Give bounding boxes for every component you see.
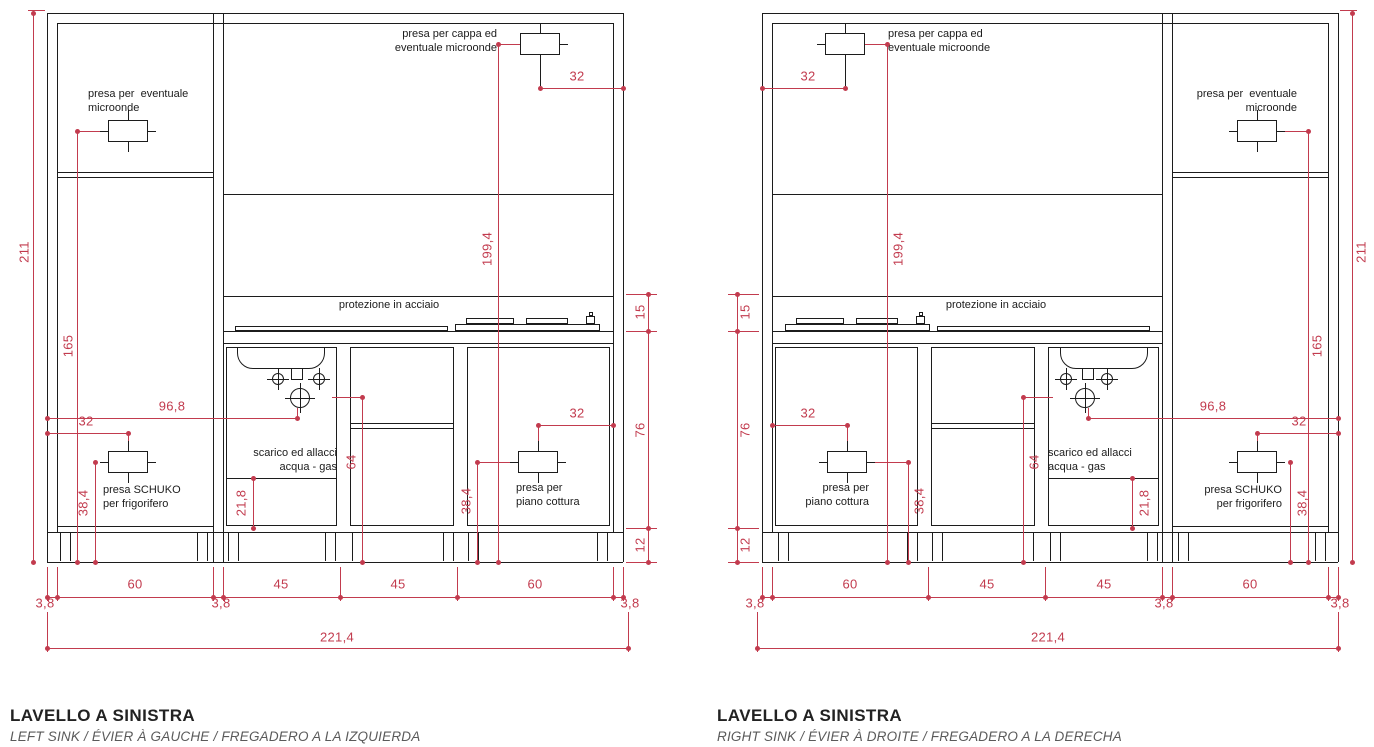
plinth-foot (788, 532, 789, 561)
dimension-arrow (1255, 431, 1260, 436)
dim-hood-height: 199,4 (891, 232, 906, 266)
schuko-outlet-label: presa SCHUKO (1204, 484, 1282, 498)
dim-schuko-height: 38,4 (1295, 490, 1310, 517)
structure-line (772, 194, 1162, 195)
plinth-foot (1325, 532, 1326, 561)
dimension-line (728, 528, 759, 529)
plinth-foot (1178, 532, 1179, 561)
dimension-arrow (906, 460, 911, 465)
dimension-arrow (770, 595, 775, 600)
dimension-arrow (1350, 11, 1355, 16)
dimension-arrow (1350, 560, 1355, 565)
plinth-foot (932, 532, 933, 561)
dim-gas-height: 64 (1027, 454, 1042, 469)
plinth-foot (1315, 532, 1316, 561)
dimension-arrow (1336, 416, 1341, 421)
dimension-arrow (1043, 595, 1048, 600)
dim-base-height: 76 (738, 422, 753, 437)
middle-base-cabinet (931, 347, 1035, 526)
dimension-arrow (1130, 526, 1135, 531)
hood-outlet-symbol (825, 33, 865, 55)
dimension-line (875, 462, 908, 463)
dimension-line (908, 462, 909, 562)
structure-line (1048, 478, 1159, 479)
hob-knob (919, 312, 923, 316)
width-dimension-line (762, 597, 1338, 598)
hood-outlet-label: presa per cappa ed (888, 28, 983, 42)
dim-total-height: 211 (1354, 241, 1369, 263)
dimension-arrow (1336, 431, 1341, 436)
counter-edge (937, 326, 1150, 331)
total-width-line (757, 648, 1338, 649)
dimension-line (887, 44, 888, 562)
dimension-arrow (885, 560, 890, 565)
sink-bowl (1060, 347, 1148, 369)
dim-sink-offset: 96,8 (1200, 399, 1227, 414)
dimension-arrow (845, 423, 850, 428)
structure-line (1328, 23, 1329, 532)
dimension-arrow (1306, 560, 1311, 565)
faucet-hole (1107, 368, 1108, 390)
dim-microwave-height: 165 (1310, 335, 1325, 358)
dimension-arrow (755, 646, 760, 651)
structure-line (1172, 172, 1328, 173)
dim-hood-offset: 32 (800, 69, 815, 84)
dimension-line (1285, 131, 1308, 132)
dimension-arrow (735, 526, 740, 531)
dimension-arrow (1130, 476, 1135, 481)
steel-protection-label: protezione in acciaio (946, 299, 1046, 313)
dimension-arrow (1086, 416, 1091, 421)
drain-label: scarico ed allacci (1048, 447, 1132, 461)
dim-panel-width: 60 (842, 577, 857, 592)
kitchen-technical-sheet: LAVELLO A SINISTRA LEFT SINK / ÉVIER À G… (0, 0, 1374, 747)
structure-line (1162, 13, 1163, 562)
dimension-arrow (1288, 460, 1293, 465)
dimension-line (1132, 478, 1133, 528)
dimension-line (728, 294, 759, 295)
dimension-arrow (1021, 560, 1026, 565)
plinth-foot (1033, 532, 1034, 561)
faucet-hole (1066, 368, 1067, 390)
schuko-outlet-symbol (1237, 451, 1277, 473)
microwave-outlet-label: presa per eventuale (1197, 88, 1297, 102)
dim-cooktop-height: 38,4 (912, 488, 927, 515)
dim-protection-height: 15 (738, 304, 753, 319)
drain-label: acqua - gas (1048, 461, 1105, 475)
dimension-line (1290, 462, 1291, 562)
structure-line (772, 296, 1162, 297)
dimension-line (1352, 13, 1353, 562)
microwave-outlet-symbol (1237, 120, 1277, 142)
floor-line (762, 562, 1338, 563)
structure-line (772, 331, 1162, 332)
dimension-arrow (1336, 646, 1341, 651)
sink-drain-box (1082, 368, 1094, 380)
microwave-outlet-label: microonde (1246, 102, 1297, 116)
plinth-foot (1147, 532, 1148, 561)
dim-panel-width: 3,8 (1331, 596, 1350, 611)
dimension-arrow (926, 595, 931, 600)
dimension-line (728, 331, 759, 332)
hood-outlet-symbol (845, 65, 846, 86)
structure-line (1172, 526, 1328, 527)
cooktop-outlet-symbol (827, 451, 867, 473)
dimension-line (1023, 397, 1024, 562)
structure-line (1172, 13, 1173, 562)
cooktop-outlet-label: presa per (823, 482, 869, 496)
dimension-arrow (770, 423, 775, 428)
dimension-arrow (1021, 395, 1026, 400)
sink-drain-symbol (1085, 383, 1086, 413)
structure-line (762, 13, 1338, 14)
hob-burner (856, 318, 898, 324)
plinth-foot (1157, 532, 1158, 561)
dim-panel-width: 60 (1242, 577, 1257, 592)
dimension-arrow (843, 86, 848, 91)
dimension-line (1340, 10, 1357, 11)
dim-panel-width: 45 (979, 577, 994, 592)
cooktop-outlet-label: piano cottura (805, 496, 869, 510)
dimension-line (1023, 397, 1053, 398)
hob-burner (796, 318, 844, 324)
dimension-line (772, 425, 847, 426)
hob-plate (785, 324, 930, 331)
dim-drain-height: 21,8 (1137, 490, 1152, 517)
plinth-foot (778, 532, 779, 561)
hob-knob (916, 316, 925, 324)
schuko-outlet-label: per frigorifero (1217, 498, 1282, 512)
structure-line (772, 23, 1328, 24)
hood-outlet-label: eventuale microonde (888, 42, 990, 56)
plinth-foot (1050, 532, 1051, 561)
dim-panel-width: 3,8 (1155, 596, 1174, 611)
plinth-foot (1060, 532, 1061, 561)
dimension-line (728, 562, 759, 563)
dimension-arrow (735, 292, 740, 297)
dimension-arrow (1288, 560, 1293, 565)
dim-plinth-height: 12 (738, 537, 753, 552)
dimension-line (1257, 433, 1338, 434)
shelf-line (931, 428, 1035, 429)
structure-line (1172, 177, 1328, 178)
dimension-arrow (1306, 129, 1311, 134)
structure-line (772, 23, 773, 532)
dim-cooktop-offset: 32 (800, 406, 815, 421)
plinth-foot (942, 532, 943, 561)
dim-schuko-offset: 32 (1291, 414, 1306, 429)
shelf-line (931, 423, 1035, 424)
kitchen-elevation-right: presa per eventualemicroondepresa per ca… (0, 0, 1374, 747)
dim-total-width: 221,4 (1031, 630, 1065, 645)
structure-line (772, 343, 1162, 344)
dimension-arrow (735, 560, 740, 565)
dim-panel-width: 3,8 (746, 596, 765, 611)
dimension-line (762, 88, 845, 89)
plinth-foot (917, 532, 918, 561)
dimension-arrow (906, 560, 911, 565)
dim-panel-width: 45 (1096, 577, 1111, 592)
dimension-arrow (735, 329, 740, 334)
dimension-line (865, 44, 887, 45)
plinth-foot (1188, 532, 1189, 561)
structure-line (762, 13, 763, 562)
dimension-arrow (760, 86, 765, 91)
structure-line (1338, 13, 1339, 562)
